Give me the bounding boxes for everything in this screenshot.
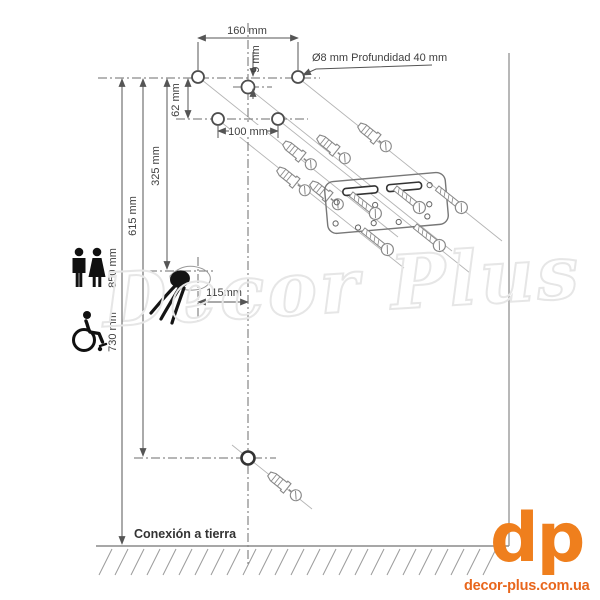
dim-label-850: 850 mm: [107, 248, 119, 288]
sensor-spout: [151, 266, 210, 323]
dim-label-9: 9 mm: [250, 45, 262, 73]
assembly-axis-lines: [202, 80, 502, 509]
dim-label-615: 615 mm: [127, 196, 139, 236]
plate-slot-right: [386, 182, 421, 192]
floor-hatching: [99, 549, 496, 575]
hole-bottom: [242, 452, 255, 465]
water-streams: [151, 285, 184, 323]
dim-label-730: 730 mm: [107, 312, 119, 352]
wheelchair-icon: [74, 311, 107, 351]
hole-top-right: [292, 71, 304, 83]
hole-row2-right: [272, 113, 284, 125]
plate-slot-left: [343, 186, 378, 196]
plate-screws: [347, 183, 469, 257]
dim-label-160: 160 mm: [227, 25, 267, 37]
dim-label-100: 100 mm: [228, 126, 268, 138]
hole-row2-left: [212, 113, 224, 125]
store-site-text: decor-plus.com.ua: [464, 578, 590, 594]
men-women-icon: [73, 248, 106, 287]
dim-label-115: 115mm: [206, 287, 242, 299]
dim-label-325: 325 mm: [150, 146, 162, 186]
drill-note: Ø8 mm Profundidad 40 mm: [312, 52, 447, 64]
hole-top-left: [192, 71, 204, 83]
ground-note: Conexión a tierra: [134, 527, 237, 541]
installation-diagram: Decor Plus: [0, 0, 600, 600]
store-logo: dp: [490, 505, 583, 573]
dim-label-62: 62 mm: [170, 83, 182, 117]
